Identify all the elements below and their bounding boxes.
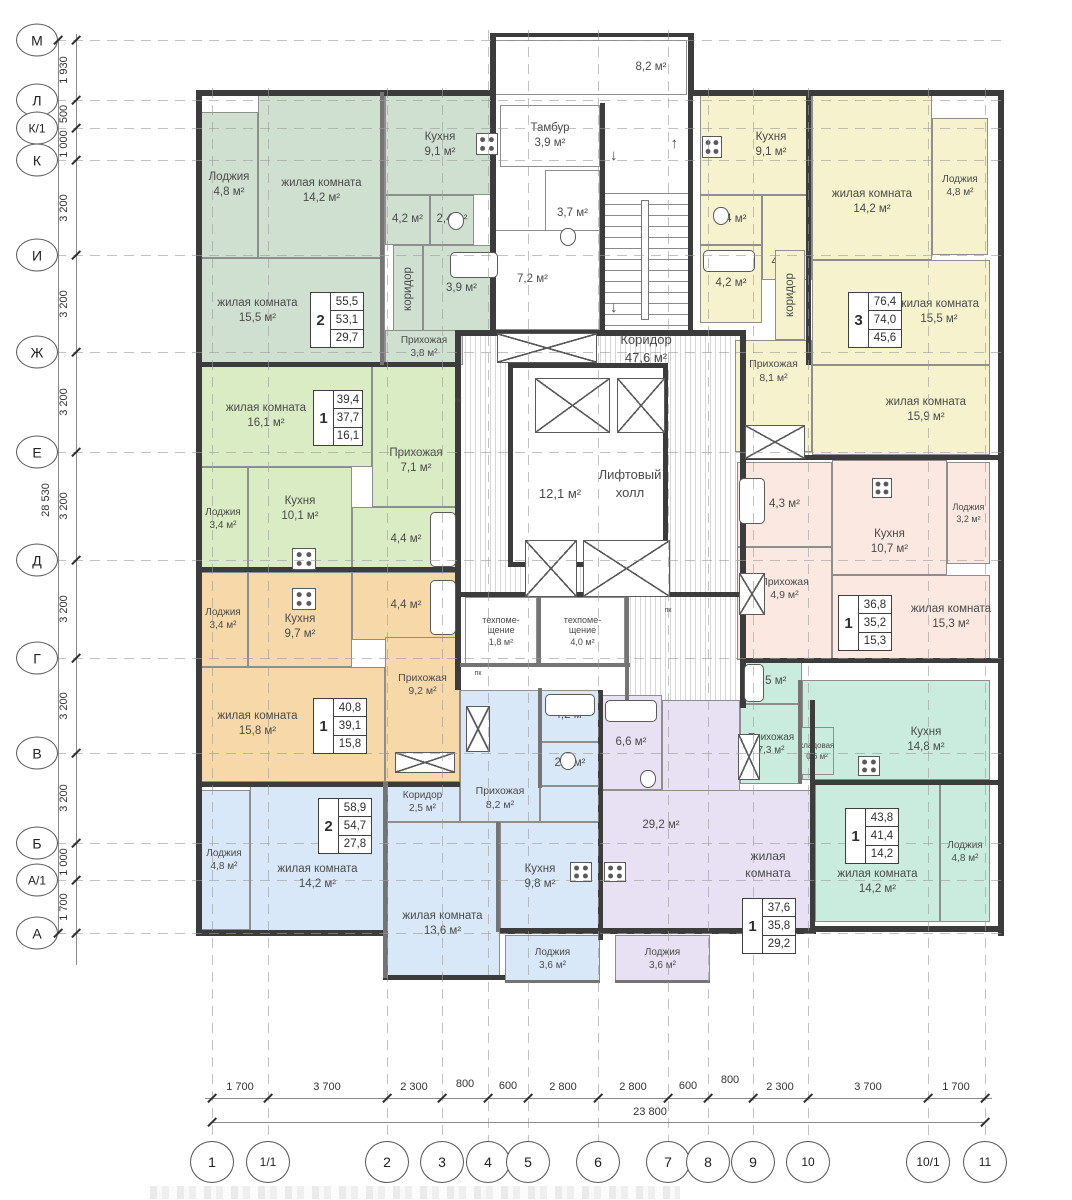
room-area: 4,3 м² (769, 498, 800, 512)
stamp-area-value: 45,6 (869, 330, 901, 347)
stamp-room-count: 2 (319, 799, 339, 853)
room-area: 15,9 м² (907, 411, 944, 425)
stamp-area-value: 15,3 (859, 633, 891, 650)
gridline-10/1 (928, 88, 929, 1148)
stove-icon (872, 478, 892, 498)
room-лоджия: Лоджия4,8 м² (198, 790, 250, 930)
room-area: 16,1 м² (247, 417, 284, 431)
room-area: 4,8 м² (214, 186, 245, 200)
bathtub-icon (703, 250, 755, 272)
room-лоджия: Лоджия3,6 м² (505, 935, 600, 983)
room-area: 4,0 м² (570, 637, 594, 648)
bathtub-icon (744, 664, 764, 702)
room-area: 9,1 м² (425, 146, 456, 160)
corridor-hatch (665, 370, 746, 597)
room-label: жилая комната15,8 м² (217, 710, 297, 738)
corridor-hatch (625, 597, 746, 705)
stamp-area-value: 76,4 (869, 293, 901, 311)
wall (600, 103, 605, 333)
stamp-area-value: 37,6 (763, 899, 795, 917)
gridline-Г (56, 658, 1008, 659)
room-label: жилая комната15,5 м² (899, 298, 979, 326)
dim-label: 3 200 (58, 692, 70, 720)
room-name: Коридор (403, 790, 443, 802)
room-name: Прихожая (398, 672, 447, 684)
axis-bubble-Г: Г (16, 642, 58, 675)
gridline-А (56, 933, 1008, 934)
dim-line (212, 1122, 985, 1123)
stamp-room-count: 1 (314, 699, 334, 753)
gridline-А/1 (56, 880, 1008, 881)
room-тамбур: Тамбур3,9 м² (500, 105, 600, 167)
axis-bubble-А: А (16, 917, 58, 950)
room-name: жилая комната (277, 863, 357, 877)
entrance-porch-icon (497, 333, 597, 363)
wall (998, 90, 1004, 936)
room-name: жилая комната (217, 297, 297, 311)
wall (810, 780, 1004, 785)
wall (380, 92, 384, 365)
gridline-4 (488, 30, 489, 1148)
cropped-title-strip (150, 1186, 680, 1199)
wall (496, 822, 500, 932)
room-label: Прихожая4,9 м² (760, 576, 809, 602)
room-label: 3,9 м² (446, 282, 477, 296)
wall (688, 35, 694, 96)
room-label: Коридор2,5 м² (403, 790, 443, 815)
dim-label: 3 200 (58, 784, 70, 812)
stamp-areas: 58,954,727,8 (339, 799, 371, 853)
wall (505, 980, 600, 983)
stove-icon (604, 862, 626, 882)
wall (490, 35, 496, 96)
room-label: жилая комната14,2 м² (277, 863, 357, 891)
room-x (540, 786, 600, 822)
room-кухня: Кухня9,7 м² (248, 572, 352, 667)
dim-label: 3 700 (313, 1081, 341, 1093)
dim-label: 2 300 (400, 1081, 428, 1093)
dim-label: 600 (679, 1080, 697, 1092)
room-area: 10,7 м² (871, 543, 908, 557)
room-name: жилая комната (832, 188, 912, 202)
dim-label: 1 000 (58, 848, 70, 876)
dim-label: 800 (721, 1074, 739, 1086)
room-name: Кухня (285, 495, 316, 509)
dim-label: 600 (499, 1080, 517, 1092)
apartment-stamp-green: 255,553,129,7 (310, 292, 364, 348)
room-label: 4,2 м² (716, 277, 747, 291)
room-name: Кухня (285, 613, 316, 627)
room-name: жилая комната (226, 402, 306, 416)
dim-label: 1 700 (226, 1081, 254, 1093)
room-area: 3,2 м² (956, 514, 980, 525)
axis-bubble-3: 3 (420, 1141, 464, 1183)
axis-bubble-11: 11 (963, 1141, 1007, 1183)
axis-bubble-10: 10 (786, 1141, 830, 1183)
stove-icon (858, 756, 880, 776)
stamp-area-value: 39,4 (334, 391, 362, 409)
wall (196, 90, 494, 96)
room-name: Лоджия (209, 171, 250, 185)
gridline-И (56, 255, 1008, 256)
room-label: коридор (784, 273, 796, 317)
room-лоджия: Лоджия3,6 м² (615, 935, 710, 983)
room-label: 4,2 м² (392, 213, 423, 227)
gridline-Е (56, 452, 1008, 453)
wall (383, 975, 505, 980)
room-label: жилая комната14,2 м² (832, 188, 912, 216)
wall (688, 90, 1004, 96)
stamp-room-count: 1 (839, 596, 859, 650)
dim-label: 3 200 (58, 388, 70, 416)
wall (688, 90, 693, 333)
room-лоджия: Лоджия3,4 м² (198, 467, 248, 572)
stamp-room-count: 1 (846, 809, 866, 863)
room-name: техпоме- щение (564, 615, 601, 636)
wardrobe-icon (466, 706, 490, 752)
toilet-icon (640, 770, 656, 788)
room-name: кладовая (800, 741, 835, 750)
room-area: 15,5 м² (239, 312, 276, 326)
room-name: Прихожая (760, 576, 809, 588)
room-label: жилая комната14,2 м² (281, 177, 361, 205)
axis-bubble-7: 7 (646, 1141, 690, 1183)
stamp-areas: 76,474,045,6 (869, 293, 901, 347)
room-name: Лоджия (645, 947, 680, 959)
overall-dim-bottom: 23 800 (633, 1106, 667, 1118)
room-лоджия: Лоджия4,8 м² (940, 782, 990, 922)
elevator-shaft-icon (525, 540, 577, 597)
room-area: 3,6 м² (649, 960, 676, 972)
room-area: 15,3 м² (932, 618, 969, 632)
gridline-М (56, 40, 1008, 41)
plan-label-лифтовый: Лифтовый (599, 467, 662, 483)
room-коридор: коридор (775, 250, 805, 340)
gridline-8 (708, 88, 709, 1148)
stamp-areas: 43,841,414,2 (866, 809, 898, 863)
stamp-area-value: 27,8 (339, 836, 371, 853)
room-label: Лоджия4,8 м² (942, 174, 977, 199)
bathtub-icon (605, 700, 657, 722)
room-label: 3,7 м² (557, 207, 588, 221)
bathtub-icon (739, 478, 765, 524)
stove-icon (570, 862, 592, 882)
room-label: Кухня9,8 м² (525, 863, 556, 891)
axis-bubble-Ж: Ж (16, 336, 58, 369)
room-label: Прихожая9,2 м² (398, 672, 447, 698)
stamp-room-count: 1 (743, 899, 763, 953)
axis-bubble-Б: Б (16, 827, 58, 860)
wall (490, 90, 496, 333)
room-area: 4,4 м² (391, 533, 422, 547)
room-лоджия: Лоджия3,4 м² (198, 572, 248, 667)
apartment-stamp-purple: 137,635,829,2 (742, 898, 796, 954)
room-лоджия: Лоджия4,8 м² (932, 118, 988, 255)
stamp-area-value: 53,1 (331, 311, 363, 329)
room-name: Лоджия (942, 174, 977, 186)
stamp-area-value: 74,0 (869, 311, 901, 329)
room-82-м: 8,2 м² (495, 40, 687, 95)
stamp-area-value: 54,7 (339, 817, 371, 835)
room-area: 4,8 м² (211, 861, 238, 873)
wall (455, 330, 461, 690)
room-x (662, 700, 740, 792)
stair-up-arrow-icon: ↑ (671, 135, 679, 152)
gridline-11 (985, 88, 986, 1148)
room-area: 15,8 м² (239, 725, 276, 739)
apartment-stamp-orange: 140,839,115,8 (313, 698, 367, 754)
dim-label: 3 200 (58, 492, 70, 520)
plan-label-комната: комната (745, 866, 790, 880)
stamp-areas: 55,553,129,7 (331, 293, 363, 347)
room-label: Кухня10,1 м² (281, 495, 318, 523)
room-name: Лоджия (205, 507, 240, 519)
room-жилая-комната: жилая комната14,2 м² (258, 95, 385, 258)
room-техпоме--щение: техпоме- щение1,8 м² (465, 597, 537, 665)
plan-label-121-м: 12,1 м² (539, 486, 581, 502)
stamp-area-value: 35,2 (859, 614, 891, 632)
axis-bubble-К/1: К/1 (16, 112, 58, 145)
room-label: Прихожая3,8 м² (401, 335, 447, 360)
bathtub-icon (430, 512, 456, 567)
room-name: Кухня (911, 726, 942, 740)
room-label: Кухня9,7 м² (285, 613, 316, 641)
room-area: 8,2 м² (636, 61, 667, 75)
room-label: 4,4 м² (391, 533, 422, 547)
axis-bubble-9: 9 (731, 1141, 775, 1183)
dim-label: 3 700 (854, 1081, 882, 1093)
stamp-areas: 37,635,829,2 (763, 899, 795, 953)
plan-label-пк: пк (475, 670, 482, 678)
elevator-shaft-icon (583, 540, 670, 597)
room-label: Лоджия4,8 м² (209, 171, 250, 199)
wall (196, 782, 460, 787)
room-area: 2,5 м² (409, 803, 436, 815)
room-area: 8,1 м² (759, 372, 787, 384)
dim-label: 1 700 (942, 1081, 970, 1093)
room-label: Лоджия3,6 м² (535, 947, 570, 972)
wardrobe-icon (745, 425, 805, 459)
stamp-area-value: 15,8 (334, 736, 366, 753)
room-area: 8,2 м² (486, 799, 514, 811)
room-area: 4,2 м² (392, 213, 423, 227)
wall (538, 688, 542, 788)
room-area: 9,7 м² (285, 628, 316, 642)
wall (812, 926, 1004, 932)
room-name: Лоджия (205, 607, 240, 619)
room-label: 7,2 м² (517, 273, 548, 287)
room-label: Лоджия3,6 м² (645, 947, 680, 972)
dim-label: 1 000 (58, 130, 70, 158)
room-label: 29,2 м² (642, 819, 679, 833)
room-area: 3,9 м² (535, 137, 566, 151)
gridline-В (56, 753, 1008, 754)
axis-bubble-М: М (16, 24, 58, 57)
room-label: жилая комната14,2 м² (837, 868, 917, 896)
floor-plan-canvas: Лоджия4,8 м²жилая комната14,2 м²Кухня9,1… (0, 0, 1072, 1200)
wall (460, 663, 630, 667)
stamp-area-value: 29,2 (763, 936, 795, 953)
dim-label: 3 200 (58, 595, 70, 623)
stamp-areas: 39,437,716,1 (334, 391, 362, 445)
gridline-Ж (56, 352, 1008, 353)
dim-line (76, 34, 77, 965)
room-лоджия: Лоджия4,8 м² (200, 112, 258, 258)
stamp-area-value: 41,4 (866, 827, 898, 845)
dim-label: 2 300 (766, 1081, 794, 1093)
corridor-hatch (460, 370, 510, 597)
gridline-7 (668, 30, 669, 1148)
room-area: 7,2 м² (517, 273, 548, 287)
room-area: 3,9 м² (446, 282, 477, 296)
wall (196, 567, 460, 572)
overall-dim-left: 28 530 (40, 483, 52, 517)
room-area: 4,4 м² (391, 599, 422, 613)
room-кладовая: кладовая0,6 м² (800, 727, 834, 775)
axis-bubble-И: И (16, 239, 58, 272)
room-area: 3,4 м² (210, 520, 237, 532)
room-name: Кухня (425, 131, 456, 145)
toilet-icon (560, 752, 576, 770)
staircase: ↓ ↑ ↓ (600, 105, 690, 330)
apartment-stamp-blue: 258,954,727,8 (318, 798, 372, 854)
room-area: 29,2 м² (642, 819, 679, 833)
stamp-area-value: 35,8 (763, 917, 795, 935)
wardrobe-icon (739, 573, 765, 615)
wall (615, 980, 710, 983)
room-area: 14,2 м² (853, 203, 890, 217)
room-name: Лоджия (947, 840, 982, 852)
room-area: 4,2 м² (716, 277, 747, 291)
stair-down-arrow-icon: ↓ (610, 147, 618, 164)
room-area: 3,6 м² (539, 960, 566, 972)
room-label: Кухня10,7 м² (871, 528, 908, 556)
room-label: жилая комната15,5 м² (217, 297, 297, 325)
axis-bubble-Д: Д (16, 544, 58, 577)
plan-label-жилая: жилая (751, 849, 786, 863)
stamp-area-value: 58,9 (339, 799, 371, 817)
stamp-areas: 40,839,115,8 (334, 699, 366, 753)
stamp-area-value: 29,7 (331, 330, 363, 347)
wall (196, 362, 460, 367)
gridline-Л (56, 100, 1008, 101)
room-name: Кухня (525, 863, 556, 877)
gridline-9 (753, 88, 754, 1148)
stove-icon (292, 588, 316, 610)
elevator-shaft-icon (617, 378, 665, 433)
gridline-3 (442, 88, 443, 1148)
stamp-area-value: 40,8 (334, 699, 366, 717)
room-72-м: 7,2 м² (495, 230, 600, 330)
dim-label: 3 200 (58, 194, 70, 222)
dim-label: 500 (58, 105, 70, 123)
room-label: Прихожая8,2 м² (476, 785, 525, 811)
gridline-Д (56, 560, 1008, 561)
gridline-6 (598, 30, 599, 1148)
wall (537, 595, 541, 667)
stamp-room-count: 1 (314, 391, 334, 445)
room-label: Кухня14,8 м² (907, 726, 944, 754)
plan-label-холл: холл (616, 485, 644, 501)
room-area: 1,8 м² (489, 637, 513, 648)
gridline-2 (387, 88, 388, 1148)
room-name: жилая комната (886, 396, 966, 410)
apartment-stamp-teal: 143,841,414,2 (845, 808, 899, 864)
room-name: Прихожая (476, 785, 525, 797)
room-area: 7,3 м² (758, 745, 785, 757)
stair-rail (641, 200, 649, 320)
room-label: Лоджия3,4 м² (205, 607, 240, 632)
stamp-area-value: 37,7 (334, 409, 362, 427)
stove-icon (702, 136, 722, 158)
room-label: 4,4 м² (391, 599, 422, 613)
stove-icon (292, 548, 316, 570)
room-area: 7,1 м² (401, 462, 432, 476)
room-label: Лоджия3,4 м² (205, 507, 240, 532)
bathtub-icon (430, 580, 456, 635)
plan-label-476-м: 47,6 м² (625, 350, 667, 366)
dim-label: 1 930 (58, 56, 70, 84)
axis-bubble-8: 8 (686, 1141, 730, 1183)
axis-bubble-К: К (16, 144, 58, 177)
room-label: Тамбур3,9 м² (530, 122, 569, 150)
room-name: Кухня (874, 528, 905, 542)
stamp-area-value: 39,1 (334, 717, 366, 735)
toilet-icon (560, 228, 576, 246)
stamp-room-count: 2 (311, 293, 331, 347)
wardrobe-icon (738, 734, 760, 780)
room-42-м: 4,2 м² (385, 195, 430, 245)
gridline-1/1 (268, 88, 269, 1148)
dim-label: 2 800 (549, 1081, 577, 1093)
dim-label: 800 (456, 1078, 474, 1090)
room-name: Кухня (756, 131, 787, 145)
plan-label-коридор: Коридор (620, 332, 671, 348)
stamp-room-count: 3 (849, 293, 869, 347)
axis-bubble-1: 1 (190, 1141, 234, 1183)
wall (508, 363, 513, 567)
axis-bubble-5: 5 (506, 1141, 550, 1183)
room-area: 15,5 м² (920, 313, 957, 327)
room-label: коридор (402, 267, 414, 311)
apartment-stamp-yellow: 376,474,045,6 (848, 292, 902, 348)
room-name: жилая комната (217, 710, 297, 724)
room-name: жилая комната (899, 298, 979, 312)
stamp-area-value: 14,2 (866, 846, 898, 863)
room-name: Лоджия (535, 947, 570, 959)
apartment-stamp-pink: 136,835,215,3 (838, 595, 892, 651)
plan-label-пк: пк (455, 397, 462, 405)
room-name: Прихожая (401, 335, 447, 347)
room-area: 3,8 м² (411, 348, 438, 360)
room-area: 9,2 м² (408, 685, 436, 697)
room-label: жилая комната15,3 м² (911, 603, 991, 631)
axis-bubble-А/1: А/1 (16, 864, 58, 897)
dim-label: 1 700 (58, 893, 70, 921)
axis-bubble-Е: Е (16, 436, 58, 469)
room-area: 14,2 м² (859, 883, 896, 897)
room-прихожая: Прихожая3,8 м² (385, 330, 463, 365)
room-label: 8,2 м² (636, 61, 667, 75)
axis-bubble-6: 6 (576, 1141, 620, 1183)
room-area: 4,8 м² (947, 187, 974, 199)
room-area: 14,2 м² (303, 192, 340, 206)
room-area: 4,9 м² (770, 589, 798, 601)
room-area: 3,4 м² (210, 620, 237, 632)
plan-label-пк: пк (665, 607, 672, 615)
wall (196, 90, 202, 936)
room-коридор: коридор (393, 245, 423, 333)
